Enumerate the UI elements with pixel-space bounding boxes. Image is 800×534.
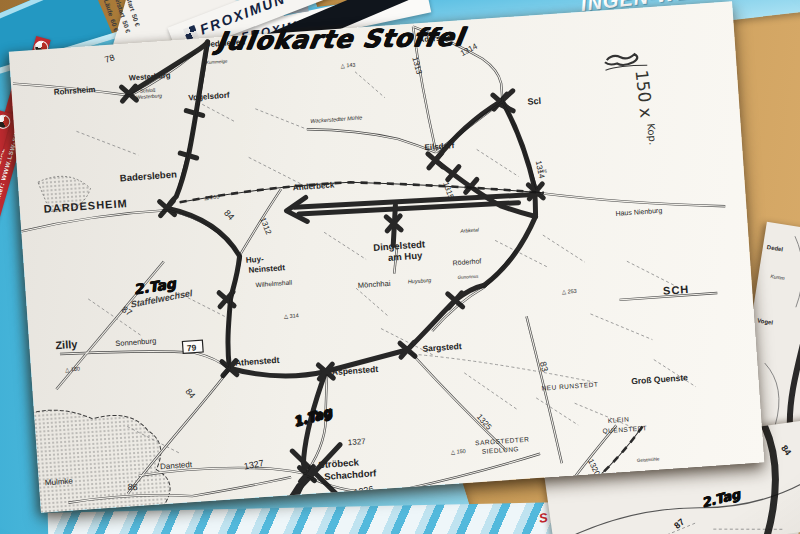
town-label: SIEDLUNG bbox=[482, 445, 520, 455]
photo-of-map-on-table: { "handwriting": { "title": "Julokarte S… bbox=[0, 0, 800, 534]
town-label: Gunonnus bbox=[457, 274, 479, 280]
elevation-label: △ 314 bbox=[284, 312, 299, 319]
town-label: NEU RUNSTEDT bbox=[541, 381, 598, 392]
elevation-label: △ 143 bbox=[340, 62, 355, 69]
town-label: Sonnenburg bbox=[115, 336, 156, 348]
town-label: Athenstedt bbox=[235, 355, 280, 368]
town-label: Aspenstedt bbox=[332, 364, 379, 377]
town-label: Badersleben bbox=[119, 168, 177, 183]
town-label: Kummelge bbox=[206, 59, 228, 66]
road-number-label: 1313 bbox=[410, 56, 424, 76]
town-label: Scl bbox=[527, 96, 541, 107]
elevation-label: △ 253 bbox=[562, 288, 577, 295]
road-number-label: 84 bbox=[183, 386, 197, 400]
road-number-label: 78 bbox=[103, 52, 116, 65]
town-label: Rohrsheim bbox=[53, 85, 95, 97]
town-label: Röderhof bbox=[452, 257, 481, 266]
copies-unit: Kop. bbox=[645, 123, 658, 146]
town-label: Groß Quenste bbox=[631, 372, 689, 386]
town-label: Eilsdorf bbox=[424, 141, 455, 152]
road-number-label: 1327 bbox=[348, 437, 367, 447]
road-number-label: 1312 bbox=[258, 216, 273, 236]
town-label: Sargstedt bbox=[422, 341, 462, 354]
town-label: Neinstedt bbox=[248, 263, 285, 275]
road-number-label: 86 bbox=[127, 482, 138, 493]
town-label: QUENSTEDT bbox=[602, 424, 647, 435]
town-label: Zilly bbox=[55, 338, 79, 352]
town-label: Haus Nienburg bbox=[615, 207, 662, 218]
road-number-label: 176 bbox=[539, 169, 547, 175]
handwritten-map-title: Julokarte Stoffel bbox=[214, 22, 466, 55]
town-label: Vogelsdorf bbox=[188, 91, 230, 103]
town-label: Mönchhai bbox=[358, 279, 391, 290]
town-label: Westerburg bbox=[136, 92, 162, 100]
road-number-label: 84 bbox=[222, 208, 236, 222]
elevation-label: △ 260 bbox=[204, 194, 219, 201]
town-label: am Huy bbox=[388, 249, 424, 262]
boxed-road-number-label: 79 bbox=[187, 342, 197, 353]
bottom-flyer-red-text: S bbox=[538, 510, 549, 526]
town-label: KLEIN bbox=[608, 415, 630, 423]
pen-scribble bbox=[605, 53, 648, 70]
town-label: Schachdorf bbox=[324, 467, 378, 482]
field-paths bbox=[74, 50, 699, 467]
town-label: Westerburg bbox=[129, 71, 171, 83]
town-label: Geistmühle bbox=[637, 456, 661, 463]
town-label: SCH bbox=[663, 283, 690, 297]
town-label: Huy- bbox=[246, 255, 265, 265]
town-label: Huysburg bbox=[408, 277, 433, 285]
town-label: Wilhelmshall bbox=[255, 279, 292, 289]
town-label: Wackerstedter Mühle bbox=[310, 114, 362, 124]
town-label: SARGSTEDTER bbox=[475, 435, 530, 446]
elevation-label: △ 150 bbox=[451, 448, 466, 455]
town-label: Anderbeck bbox=[293, 180, 335, 192]
town-label: Arbketal bbox=[459, 226, 480, 233]
elevation-label: △ 180 bbox=[65, 366, 80, 373]
map-sheet: DedelebenWesterburgSchloßWesterburgRohrs… bbox=[9, 1, 764, 512]
